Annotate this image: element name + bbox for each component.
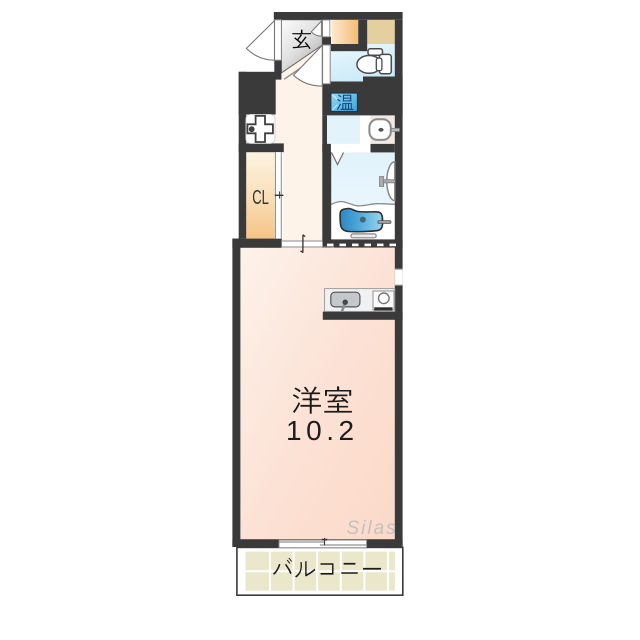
svg-text:Silas: Silas (347, 518, 398, 539)
svg-text:CL: CL (252, 187, 269, 209)
svg-text:10.2: 10.2 (286, 415, 359, 446)
